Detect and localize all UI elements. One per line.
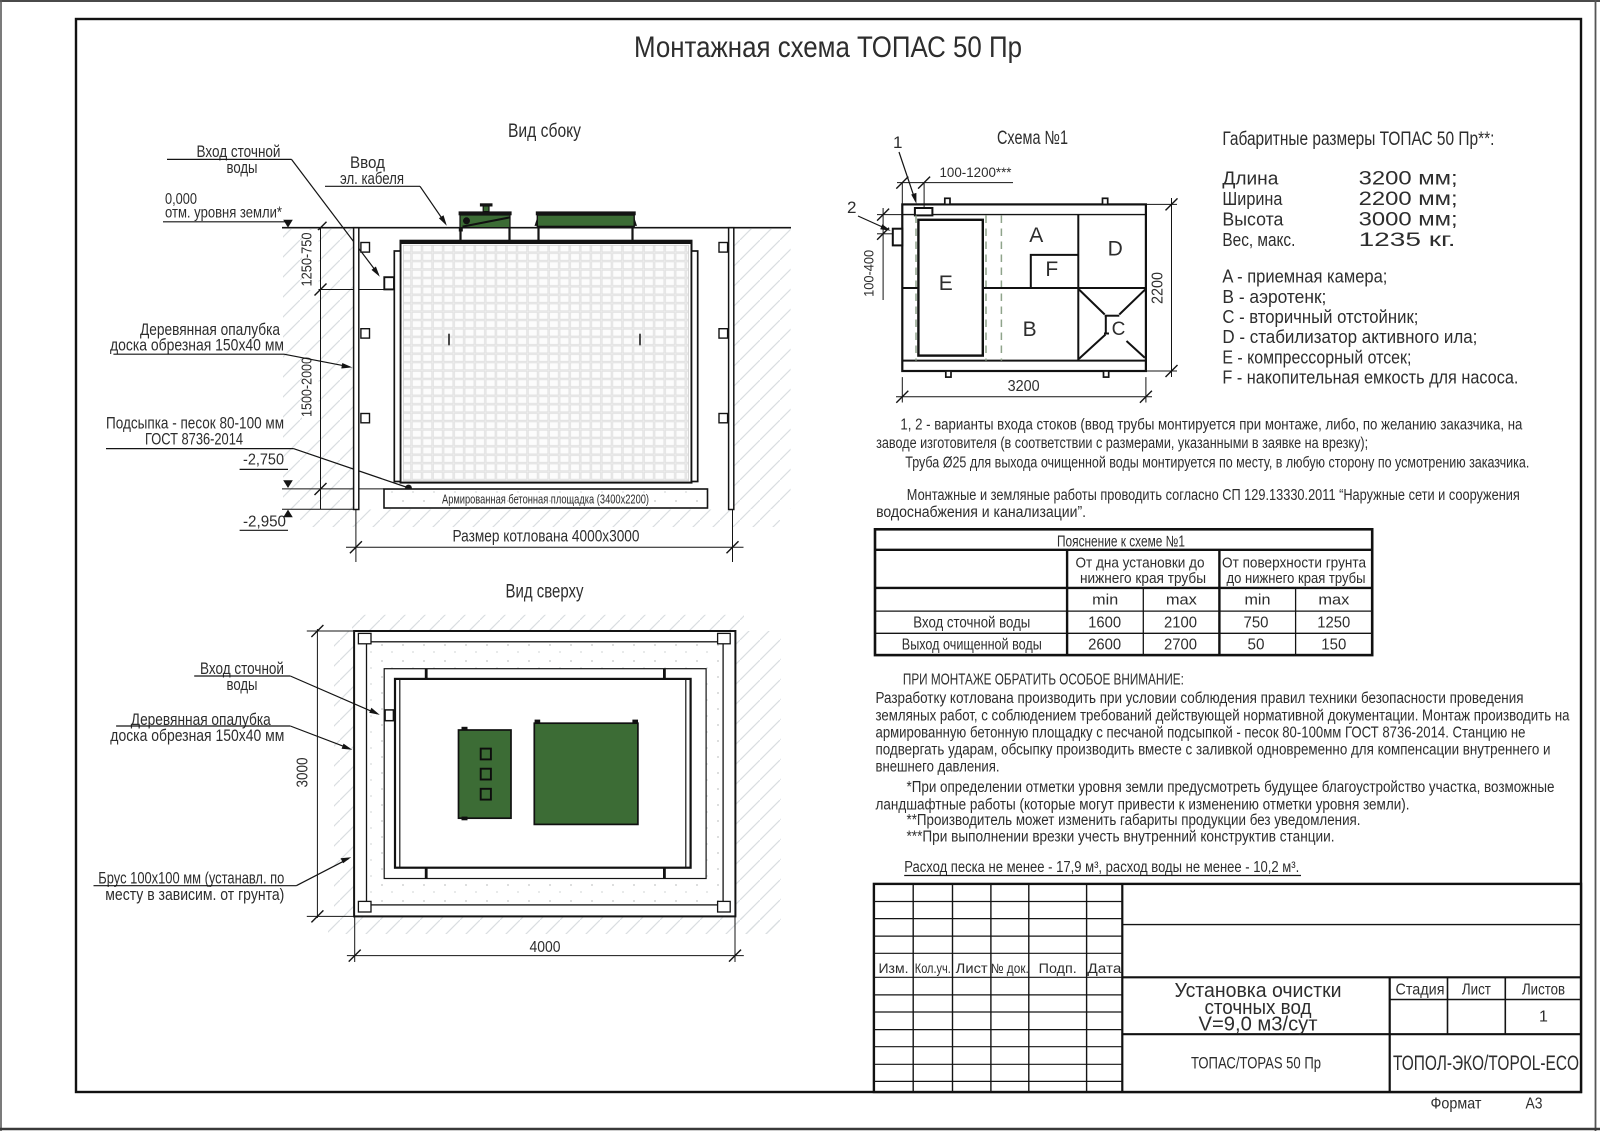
svg-text:Длина: Длина — [1222, 169, 1279, 189]
svg-text:1235 кг.: 1235 кг. — [1359, 230, 1456, 251]
svg-text:Высота: Высота — [1222, 210, 1284, 230]
svg-text:B: B — [1023, 318, 1037, 341]
svg-text:подвергать ударам, обсыпку про: подвергать ударам, обсыпку производить в… — [876, 742, 1551, 759]
svg-text:земляных работ, с соблюдением: земляных работ, с соблюдением требований… — [876, 708, 1570, 725]
svg-text:Формат: Формат — [1431, 1096, 1483, 1113]
svg-text:2200 мм;: 2200 мм; — [1359, 189, 1458, 210]
svg-text:min: min — [1245, 593, 1271, 609]
svg-text:3000: 3000 — [295, 757, 312, 787]
svg-text:Кол.уч.: Кол.уч. — [915, 961, 951, 976]
svg-text:A: A — [1029, 224, 1043, 247]
svg-text:От дна установки до: От дна установки до — [1076, 556, 1205, 572]
svg-text:Разработку котлована производи: Разработку котлована производить при усл… — [876, 690, 1524, 707]
svg-text:50: 50 — [1248, 637, 1265, 654]
svg-text:max: max — [1166, 593, 1198, 609]
svg-text:Листов: Листов — [1522, 982, 1565, 999]
svg-text:1600: 1600 — [1088, 615, 1121, 632]
svg-text:воды: воды — [227, 675, 258, 694]
svg-text:доска обрезная 150х40 мм: доска обрезная 150х40 мм — [110, 726, 284, 745]
svg-text:Лист: Лист — [956, 961, 988, 976]
svg-text:Пояснение к схеме №1: Пояснение к схеме №1 — [1057, 534, 1185, 551]
svg-text:D - стабилизатор активного ила: D - стабилизатор активного ила; — [1222, 327, 1477, 347]
svg-text:Армированная бетонная площадка: Армированная бетонная площадка (3400х220… — [442, 493, 649, 507]
svg-text:Габаритные размеры ТОПАС 50 Пр: Габаритные размеры ТОПАС 50 Пр**: — [1222, 129, 1494, 150]
svg-text:***При выполнении врезки учест: ***При выполнении врезки учесть внутренн… — [907, 829, 1335, 846]
svg-text:3200 мм;: 3200 мм; — [1359, 169, 1458, 190]
svg-text:Выход очищенной воды: Выход очищенной воды — [902, 637, 1042, 654]
svg-text:B - аэротенк;: B - аэротенк; — [1222, 287, 1326, 307]
svg-text:100-400: 100-400 — [861, 250, 877, 297]
svg-text:2600: 2600 — [1088, 637, 1121, 654]
svg-text:100-1200***: 100-1200*** — [940, 164, 1013, 180]
svg-text:**Производитель может изменить: **Производитель может изменить габариты … — [907, 812, 1361, 829]
svg-text:Дата: Дата — [1087, 961, 1122, 976]
svg-text:отм. уровня земли*: отм. уровня земли* — [165, 205, 282, 222]
svg-text:1: 1 — [893, 133, 902, 152]
svg-text:Монтажная схема ТОПАС 50 Пр: Монтажная схема ТОПАС 50 Пр — [634, 31, 1022, 64]
svg-text:армированную бетонную площадку: армированную бетонную площадку с песчано… — [876, 725, 1526, 742]
svg-text:1, 2 - варианты входа стоков: 1, 2 - варианты входа стоков (ввод трубы… — [900, 417, 1522, 434]
svg-text:Подп.: Подп. — [1039, 961, 1077, 976]
svg-text:доска обрезная 150х40 мм: доска обрезная 150х40 мм — [110, 336, 284, 355]
svg-text:D: D — [1108, 238, 1123, 261]
svg-text:F - накопительная емкость для: F - накопительная емкость для насоса. — [1222, 368, 1518, 388]
svg-text:Лист: Лист — [1462, 982, 1491, 999]
svg-text:E: E — [939, 272, 953, 295]
svg-text:150: 150 — [1321, 637, 1346, 654]
svg-text:2100: 2100 — [1164, 615, 1197, 632]
svg-text:Монтажные и земляные работы пр: Монтажные и земляные работы проводить со… — [907, 487, 1520, 504]
svg-text:V=9,0 м3/сут: V=9,0 м3/сут — [1199, 1014, 1318, 1036]
svg-text:2200: 2200 — [1150, 272, 1167, 304]
svg-text:От поверхности грунта: От поверхности грунта — [1222, 556, 1367, 572]
svg-text:4000: 4000 — [530, 939, 561, 956]
svg-text:месту в зависим. от грунта): месту в зависим. от грунта) — [105, 885, 284, 904]
svg-text:нижнего края трубы: нижнего края трубы — [1080, 571, 1206, 587]
svg-text:Ширина: Ширина — [1222, 189, 1283, 209]
svg-text:1500-2000: 1500-2000 — [299, 357, 316, 417]
svg-text:3200: 3200 — [1008, 378, 1040, 395]
svg-text:2: 2 — [847, 198, 856, 217]
svg-text:ПРИ МОНТАЖЕ ОБРАТИТЬ ОСОБОЕ ВН: ПРИ МОНТАЖЕ ОБРАТИТЬ ОСОБОЕ ВНИМАНИЕ: — [903, 672, 1184, 689]
svg-text:Схема №1: Схема №1 — [997, 128, 1068, 149]
svg-text:-2,950: -2,950 — [243, 514, 286, 531]
svg-text:№ док.: № док. — [991, 961, 1029, 976]
svg-text:Стадия: Стадия — [1396, 982, 1445, 999]
svg-text:E - компрессорный отсек;: E - компрессорный отсек; — [1222, 348, 1411, 368]
svg-text:Вход сточной воды: Вход сточной воды — [913, 615, 1030, 632]
svg-text:Размер котлована 4000х3000: Размер котлована 4000х3000 — [453, 527, 640, 546]
svg-text:Вес, макс.: Вес, макс. — [1222, 230, 1295, 250]
svg-text:C: C — [1112, 319, 1126, 340]
svg-text:ГОСТ 8736-2014: ГОСТ 8736-2014 — [145, 430, 243, 449]
svg-text:2700: 2700 — [1164, 637, 1197, 654]
svg-text:внешнего давления.: внешнего давления. — [876, 759, 1000, 776]
svg-text:3000 мм;: 3000 мм; — [1359, 210, 1458, 231]
svg-text:A - приемная камера;: A - приемная камера; — [1222, 267, 1387, 287]
svg-text:1: 1 — [1539, 1009, 1548, 1026]
svg-text:ТОПАС/TOPAS 50 Пр: ТОПАС/TOPAS 50 Пр — [1191, 1054, 1321, 1073]
svg-text:Вид сбоку: Вид сбоку — [508, 121, 581, 142]
svg-text:1250: 1250 — [1317, 615, 1350, 632]
svg-text:1250-750: 1250-750 — [299, 233, 316, 287]
svg-text:эл. кабеля: эл. кабеля — [340, 169, 404, 188]
svg-text:F: F — [1045, 258, 1058, 281]
svg-text:воды: воды — [227, 158, 258, 177]
svg-text:Расход песка не менее - 17,9 м: Расход песка не менее - 17,9 м³, расход … — [904, 859, 1299, 876]
svg-text:заводе изготовителя (в соответ: заводе изготовителя (в соответствии с ра… — [876, 435, 1368, 452]
svg-text:ландшафтные работы (которые мо: ландшафтные работы (которые могут привес… — [876, 797, 1410, 814]
svg-text:750: 750 — [1244, 615, 1269, 632]
svg-text:до нижнего края трубы: до нижнего края трубы — [1227, 571, 1366, 587]
svg-text:ТОПОЛ-ЭКО/TOPOL-ECO: ТОПОЛ-ЭКО/TOPOL-ECO — [1393, 1052, 1579, 1075]
svg-text:*При определении отметки уровн: *При определении отметки уровня земли пр… — [907, 779, 1555, 796]
svg-text:А3: А3 — [1526, 1096, 1543, 1113]
svg-text:водоснабжения и канализации”.: водоснабжения и канализации”. — [876, 504, 1086, 521]
svg-text:max: max — [1318, 593, 1350, 609]
svg-text:-2,750: -2,750 — [243, 452, 284, 469]
svg-text:Изм.: Изм. — [879, 961, 909, 976]
svg-text:C - вторичный отстойник;: C - вторичный отстойник; — [1222, 307, 1418, 327]
svg-text:Труба Ø25 для выхода очищенной: Труба Ø25 для выхода очищенной воды монт… — [905, 455, 1529, 472]
svg-text:min: min — [1092, 593, 1118, 609]
svg-text:Вид сверху: Вид сверху — [506, 582, 584, 603]
